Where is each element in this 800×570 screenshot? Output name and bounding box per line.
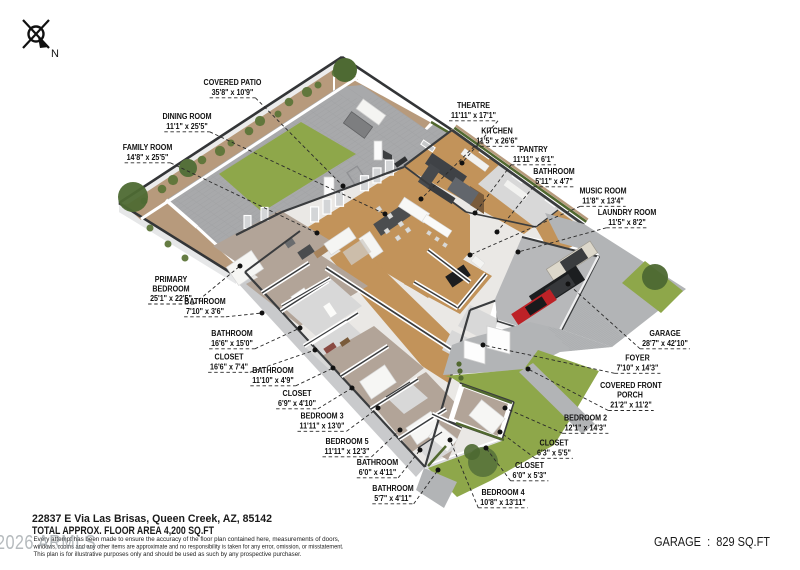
svg-text:11'11" x 6'1": 11'11" x 6'1" (513, 155, 554, 164)
svg-text:THEATRE: THEATRE (457, 101, 491, 110)
svg-text:BEDROOM: BEDROOM (152, 285, 189, 294)
svg-text:CLOSET: CLOSET (283, 389, 312, 398)
svg-text:COVERED PATIO: COVERED PATIO (204, 78, 262, 87)
svg-text:12'1" x 14'3": 12'1" x 14'3" (565, 424, 607, 433)
svg-text:N: N (51, 48, 59, 60)
svg-text:MUSIC ROOM: MUSIC ROOM (579, 187, 626, 196)
svg-text:BATHROOM: BATHROOM (252, 366, 294, 375)
svg-text:CLOSET: CLOSET (215, 353, 244, 362)
svg-text:DINING ROOM: DINING ROOM (163, 112, 212, 121)
svg-text:11'10" x 4'9": 11'10" x 4'9" (252, 376, 294, 385)
svg-text:6'0" x 5'3": 6'0" x 5'3" (513, 471, 547, 480)
svg-text:5'11" x 4'7": 5'11" x 4'7" (535, 177, 573, 186)
svg-text:11'1" x 25'5": 11'1" x 25'5" (166, 122, 208, 131)
svg-text:PRIMARY: PRIMARY (155, 275, 188, 284)
svg-text:LAUNDRY ROOM: LAUNDRY ROOM (598, 208, 657, 217)
svg-text:FOYER: FOYER (625, 354, 650, 363)
svg-text:COVERED FRONT: COVERED FRONT (600, 381, 662, 390)
svg-text:28'7" x 42'10": 28'7" x 42'10" (642, 339, 688, 348)
svg-text:6'3" x 5'5": 6'3" x 5'5" (537, 449, 571, 458)
svg-text:PORCH: PORCH (617, 391, 643, 400)
svg-text:6'0" x 4'11": 6'0" x 4'11" (359, 468, 397, 477)
svg-text:FAMILY ROOM: FAMILY ROOM (123, 143, 173, 152)
svg-text:11'5" x 26'6": 11'5" x 26'6" (476, 137, 518, 146)
svg-text:BATHROOM: BATHROOM (184, 297, 226, 306)
svg-text:BEDROOM 4: BEDROOM 4 (481, 488, 525, 497)
svg-text:GARAGE : 829 SQ.FT: GARAGE : 829 SQ.FT (654, 534, 770, 549)
svg-text:11'11" x 17'1": 11'11" x 17'1" (451, 111, 496, 120)
svg-text:BEDROOM 5: BEDROOM 5 (325, 437, 369, 446)
svg-text:14'8" x 25'5": 14'8" x 25'5" (127, 153, 169, 162)
svg-text:PANTRY: PANTRY (519, 145, 548, 154)
svg-text:16'6" x 15'0": 16'6" x 15'0" (211, 339, 253, 348)
svg-text:CLOSET: CLOSET (515, 461, 544, 470)
svg-text:2026 ARMLS: 2026 ARMLS (0, 532, 96, 554)
svg-text:10'8" x 13'11": 10'8" x 13'11" (480, 498, 526, 507)
svg-text:BEDROOM 2: BEDROOM 2 (564, 414, 608, 423)
svg-text:11'11" x 13'0": 11'11" x 13'0" (300, 422, 345, 431)
svg-text:11'5" x 8'2": 11'5" x 8'2" (608, 218, 646, 227)
svg-text:GARAGE: GARAGE (649, 329, 681, 338)
svg-text:22837 E Via Las Brisas, Queen: 22837 E Via Las Brisas, Queen Creek, AZ,… (32, 513, 272, 525)
svg-text:CLOSET: CLOSET (540, 439, 569, 448)
svg-text:35'8" x 10'9": 35'8" x 10'9" (212, 88, 254, 97)
svg-text:11'11" x 12'3": 11'11" x 12'3" (325, 447, 370, 456)
svg-text:11'8" x 13'4": 11'8" x 13'4" (582, 197, 624, 206)
svg-text:BATHROOM: BATHROOM (211, 329, 253, 338)
svg-text:5'7" x 4'11": 5'7" x 4'11" (374, 494, 412, 503)
svg-text:BEDROOM 3: BEDROOM 3 (300, 412, 344, 421)
svg-text:21'2" x 11'2": 21'2" x 11'2" (610, 401, 652, 410)
svg-text:BATHROOM: BATHROOM (357, 458, 399, 467)
svg-text:7'10" x 14'3": 7'10" x 14'3" (617, 364, 659, 373)
svg-text:KITCHEN: KITCHEN (481, 127, 513, 136)
svg-text:BATHROOM: BATHROOM (533, 167, 575, 176)
svg-text:16'6" x 7'4": 16'6" x 7'4" (210, 363, 248, 372)
svg-text:6'9" x 4'10": 6'9" x 4'10" (278, 399, 316, 408)
svg-text:BATHROOM: BATHROOM (372, 484, 414, 493)
svg-text:7'10" x 3'6": 7'10" x 3'6" (186, 307, 224, 316)
